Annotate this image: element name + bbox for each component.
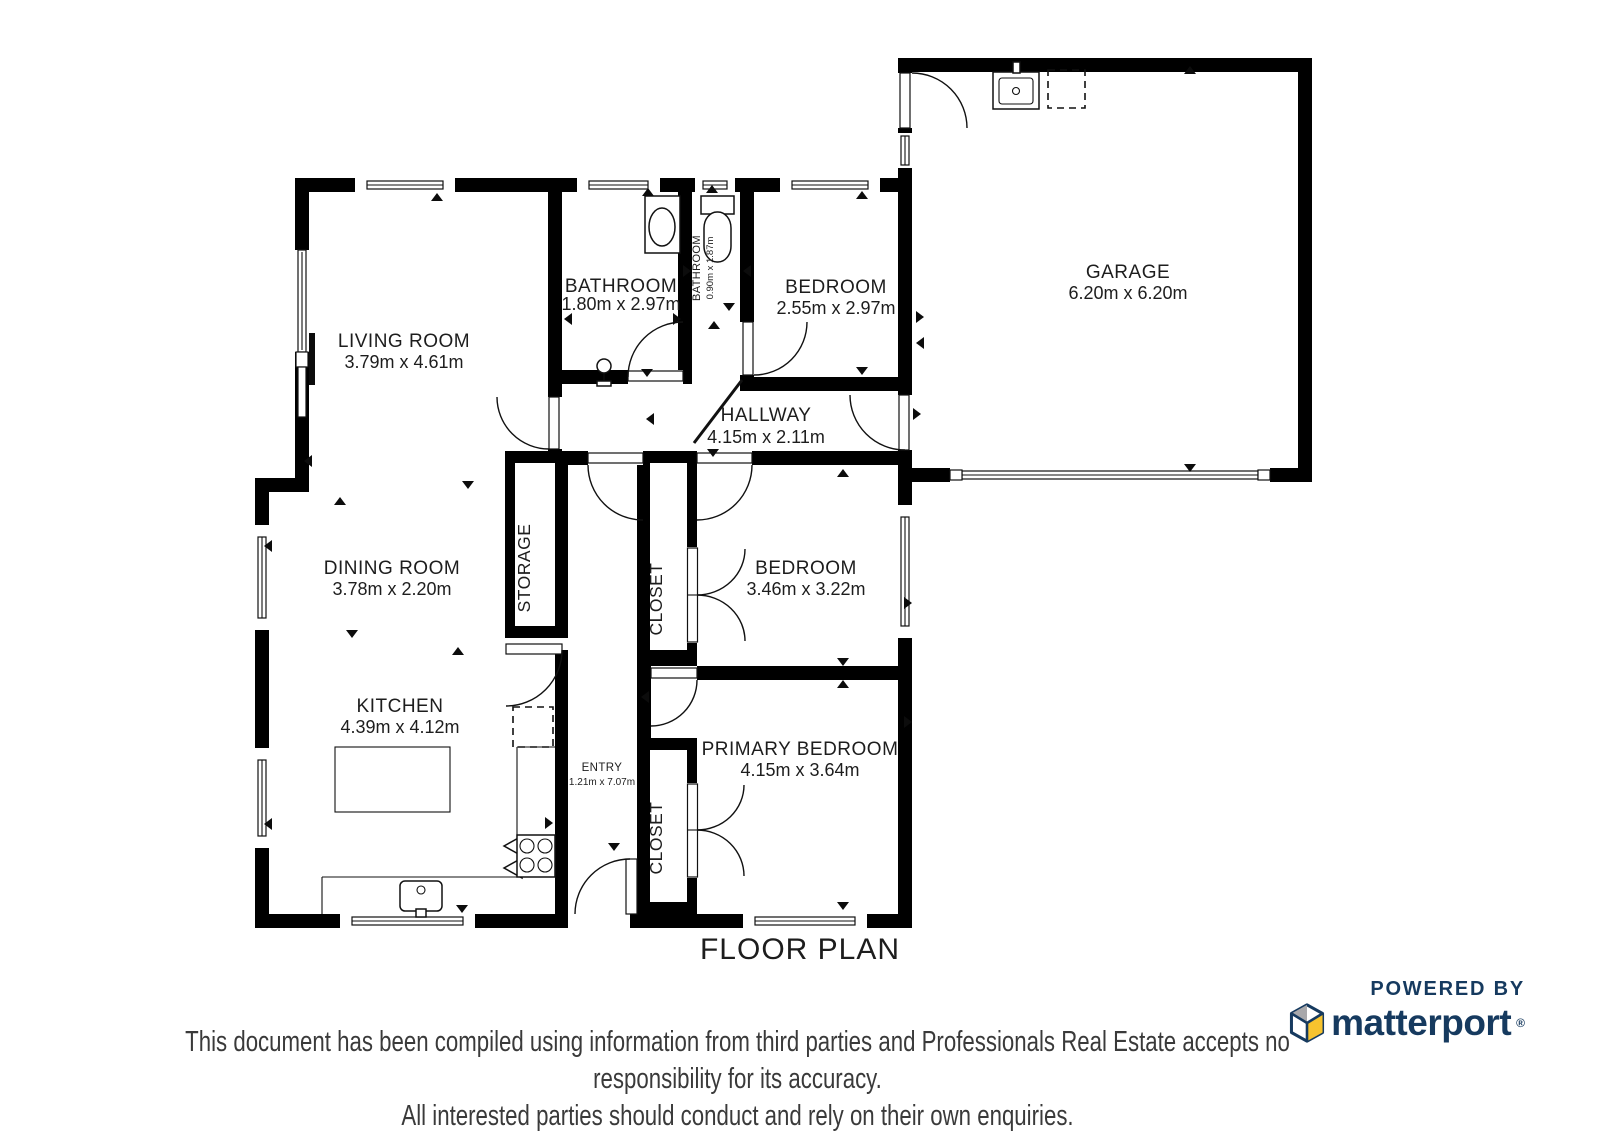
- kitchen-label: KITCHEN: [357, 696, 444, 717]
- disclaimer-text: This document has been compiled using in…: [162, 1024, 1313, 1131]
- bedroom2-label: BEDROOM: [755, 558, 857, 579]
- matterport-wordmark: matterport: [1331, 1003, 1511, 1043]
- bedroom1-dims: 2.55m x 2.97m: [776, 298, 895, 318]
- garage-appliance-dashed-box: [1048, 70, 1085, 108]
- floor-plan-page: LIVING ROOM 3.79m x 4.61m BATHROOM 1.80m…: [0, 0, 1600, 1131]
- registered-mark: ®: [1516, 1013, 1525, 1033]
- disclaimer-line-2: All interested parties should conduct an…: [162, 1098, 1313, 1131]
- closet-upper-label: CLOSET: [646, 562, 666, 635]
- storage-label: STORAGE: [514, 524, 534, 613]
- kitchen-appliance-dashed-box: [513, 707, 553, 747]
- closet-lower-label: CLOSET: [646, 801, 666, 874]
- entry-label: ENTRY: [582, 762, 623, 774]
- bedroom2-dims: 3.46m x 3.22m: [746, 579, 865, 599]
- entry-dims: 1.21m x 7.07m: [569, 777, 635, 788]
- room-labels: LIVING ROOM 3.79m x 4.61m BATHROOM 1.80m…: [324, 235, 1188, 874]
- page-title: FLOOR PLAN: [0, 933, 1600, 967]
- primary-bedroom-dims: 4.15m x 3.64m: [740, 760, 859, 780]
- bathroom-toilet-icon: [645, 196, 680, 253]
- direction-markers: [264, 66, 1196, 913]
- hallway-label: HALLWAY: [721, 405, 812, 426]
- garage-dims: 6.20m x 6.20m: [1068, 283, 1187, 303]
- bedroom1-label: BEDROOM: [785, 277, 887, 298]
- garage-label: GARAGE: [1086, 262, 1170, 283]
- kitchen-sink-icon: [400, 881, 442, 917]
- windows: [255, 133, 1270, 928]
- kitchen-dims: 4.39m x 4.12m: [340, 717, 459, 737]
- living-room-wall-feature: [309, 333, 315, 385]
- living-room-dims: 3.79m x 4.61m: [344, 352, 463, 372]
- kitchen-island: [335, 747, 450, 812]
- powered-by-text: POWERED BY: [1280, 978, 1525, 1001]
- disclaimer-line-1: This document has been compiled using in…: [162, 1024, 1313, 1098]
- primary-bedroom-label: PRIMARY BEDROOM: [702, 739, 899, 760]
- bathroom-dims: 1.80m x 2.97m: [561, 294, 680, 314]
- matterport-branding: POWERED BY matterport®: [1280, 978, 1525, 1044]
- living-room-label: LIVING ROOM: [338, 331, 470, 352]
- small-bathroom-label: BATHROOM: [691, 235, 703, 301]
- dining-room-dims: 3.78m x 2.20m: [332, 579, 451, 599]
- small-bathroom-dims: 0.90m x 1.87m: [705, 237, 716, 300]
- kitchen-stove-icon: [517, 835, 555, 877]
- hallway-dims: 4.15m x 2.11m: [707, 427, 825, 447]
- dining-room-label: DINING ROOM: [324, 558, 460, 579]
